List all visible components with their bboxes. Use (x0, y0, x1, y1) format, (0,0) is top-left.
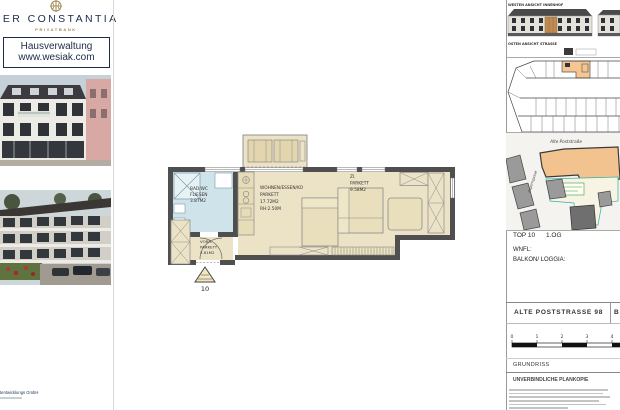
unit-level-label: 1.OG (546, 232, 562, 239)
room-label-bad-area: 3.87M2 (190, 198, 206, 204)
room-label-wohnen-floor: PARKETT (260, 192, 279, 198)
elevation-top-label: WESTEN ANSICHT INNENHOF (508, 3, 564, 7)
room-label-bad-floor: FLIESEN (190, 192, 208, 198)
divider-3 (506, 230, 620, 231)
room-label-wohnen-height: RH:2.50M (260, 206, 281, 212)
room-label-vorr-area: 3.81M2 (200, 250, 215, 255)
scale-bar: 0 1 2 3 4 (506, 330, 620, 352)
elevation-drawings: WESTEN ANSICHT INNENHOF OSTEN ANSICHT ST… (506, 0, 620, 57)
scale-tick-2: 2 (561, 334, 564, 340)
building-photo-balconies (0, 190, 111, 285)
website-text: www.wesiak.com (4, 52, 109, 63)
room-label-bad-name: BAD/WC (190, 186, 208, 192)
footer-company-text: tentwicklungs GmbH (0, 390, 38, 395)
hausverwaltung-label: Hausverwaltung (4, 41, 109, 52)
divider-5 (506, 323, 620, 324)
room-label-vorr-floor: PARKETT (200, 245, 218, 250)
key-plan (506, 58, 620, 132)
logo-subtitle: PRIVATBANK (0, 27, 112, 32)
room-label-vorr-name: VORR. (200, 239, 212, 244)
disclaimer-title: UNVERBINDLICHE PLANKOPIE (513, 377, 588, 383)
scale-tick-4: 4 (611, 334, 614, 340)
unit-top-label: TOP 10 (513, 232, 535, 239)
address-fragment: B (614, 309, 619, 316)
room-label-zi-name: ZI. (350, 174, 356, 180)
sidebar-divider (113, 0, 114, 410)
building-photo-modern (0, 75, 111, 166)
scale-tick-1: 1 (536, 334, 539, 340)
plan-sheet: PER CONSTANTIA PRIVATBANK Hausverwaltung… (0, 0, 620, 410)
divider-7 (506, 372, 620, 373)
room-label-zi-area: 9.58M2 (350, 187, 366, 193)
entrance-arrow: 10 (195, 267, 215, 293)
address-row-divider (610, 302, 611, 323)
elevation-bottom-label: OSTEN ANSICHT STRASSE (508, 42, 558, 46)
site-plan: Alte Poststraße Asperngasse (506, 133, 620, 230)
footer-company-line2 (0, 397, 22, 399)
drawing-type-label: GRUNDRISS (513, 362, 550, 368)
contact-box: Hausverwaltung www.wesiak.com (3, 37, 110, 68)
room-label-wohnen-area: 17.72M2 (260, 199, 279, 205)
address-label: ALTE POSTSTRASSE 98 (514, 309, 603, 316)
scale-tick-3: 3 (586, 334, 589, 340)
divider-4 (506, 302, 620, 303)
logo-ornament-icon (43, 0, 69, 13)
logo-title: PER CONSTANTIA (0, 13, 126, 25)
balcony (243, 135, 307, 168)
divider-6 (506, 358, 620, 359)
sidebar: PER CONSTANTIA PRIVATBANK Hausverwaltung… (0, 0, 113, 410)
room-label-zi-floor: PARKETT (350, 181, 369, 187)
room-label-wohnen-name: WOHNEN/ESSEN/KO (260, 185, 304, 191)
floor-plan: 10 BAD/WC FLIESEN 3.87M2 WOHNEN/ESSEN/KO… (160, 128, 460, 293)
wnfl-label: WNFL: (513, 247, 532, 253)
scale-tick-0: 0 (511, 334, 514, 340)
fine-print-lines (509, 389, 611, 410)
entrance-number: 10 (201, 285, 209, 293)
balkon-loggia-label: BALKON/ LOGGIA: (513, 257, 565, 263)
street-label-top: Alte Poststraße (549, 139, 582, 144)
